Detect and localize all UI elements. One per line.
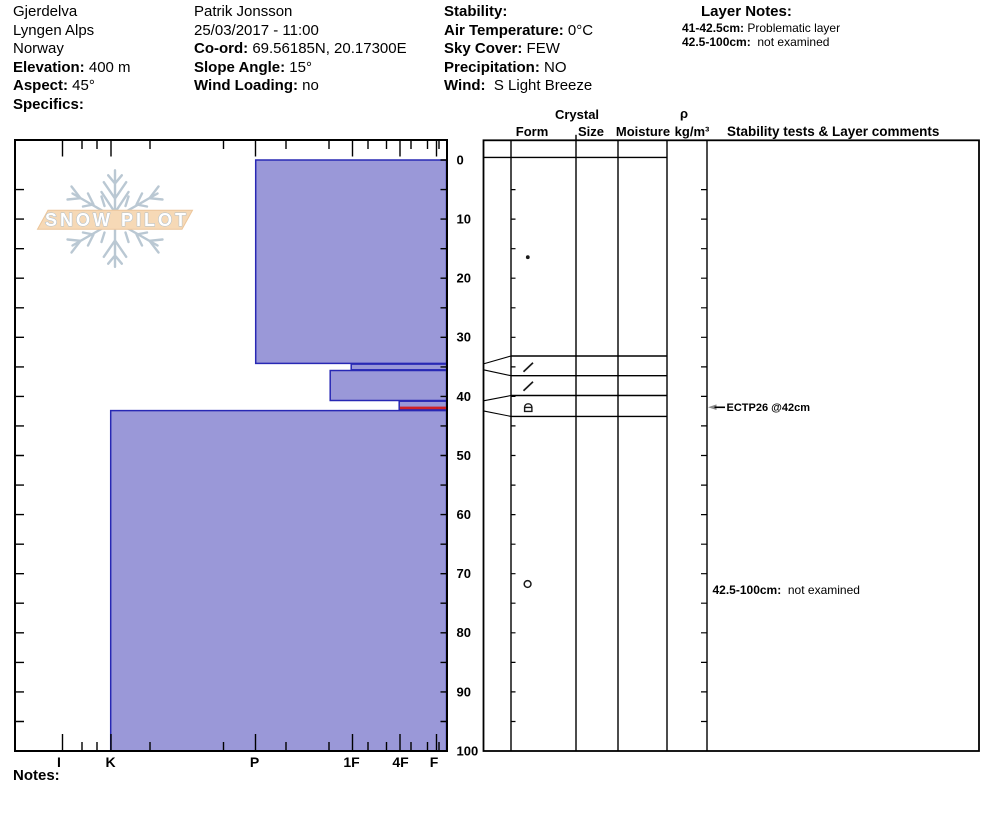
svg-text:P: P <box>250 754 259 770</box>
svg-text:0: 0 <box>457 152 464 167</box>
svg-text:4F: 4F <box>392 754 409 770</box>
svg-text:20: 20 <box>457 271 471 286</box>
svg-text:K: K <box>105 754 115 770</box>
svg-text:10: 10 <box>457 212 471 227</box>
svg-text:40: 40 <box>457 389 471 404</box>
svg-text:ECTP26 @42cm: ECTP26 @42cm <box>727 402 811 414</box>
svg-text:80: 80 <box>457 625 471 640</box>
svg-text:50: 50 <box>457 448 471 463</box>
svg-text:I: I <box>57 754 61 770</box>
svg-text:SNOW PILOT: SNOW PILOT <box>45 210 189 230</box>
svg-text:70: 70 <box>457 566 471 581</box>
svg-text:1F: 1F <box>343 754 360 770</box>
svg-text:100: 100 <box>457 743 479 758</box>
svg-text:90: 90 <box>457 684 471 699</box>
svg-text:30: 30 <box>457 330 471 345</box>
svg-text:F: F <box>430 754 439 770</box>
svg-text:42.5-100cm: not examined: 42.5-100cm: not examined <box>713 583 860 597</box>
svg-text:60: 60 <box>457 507 471 522</box>
